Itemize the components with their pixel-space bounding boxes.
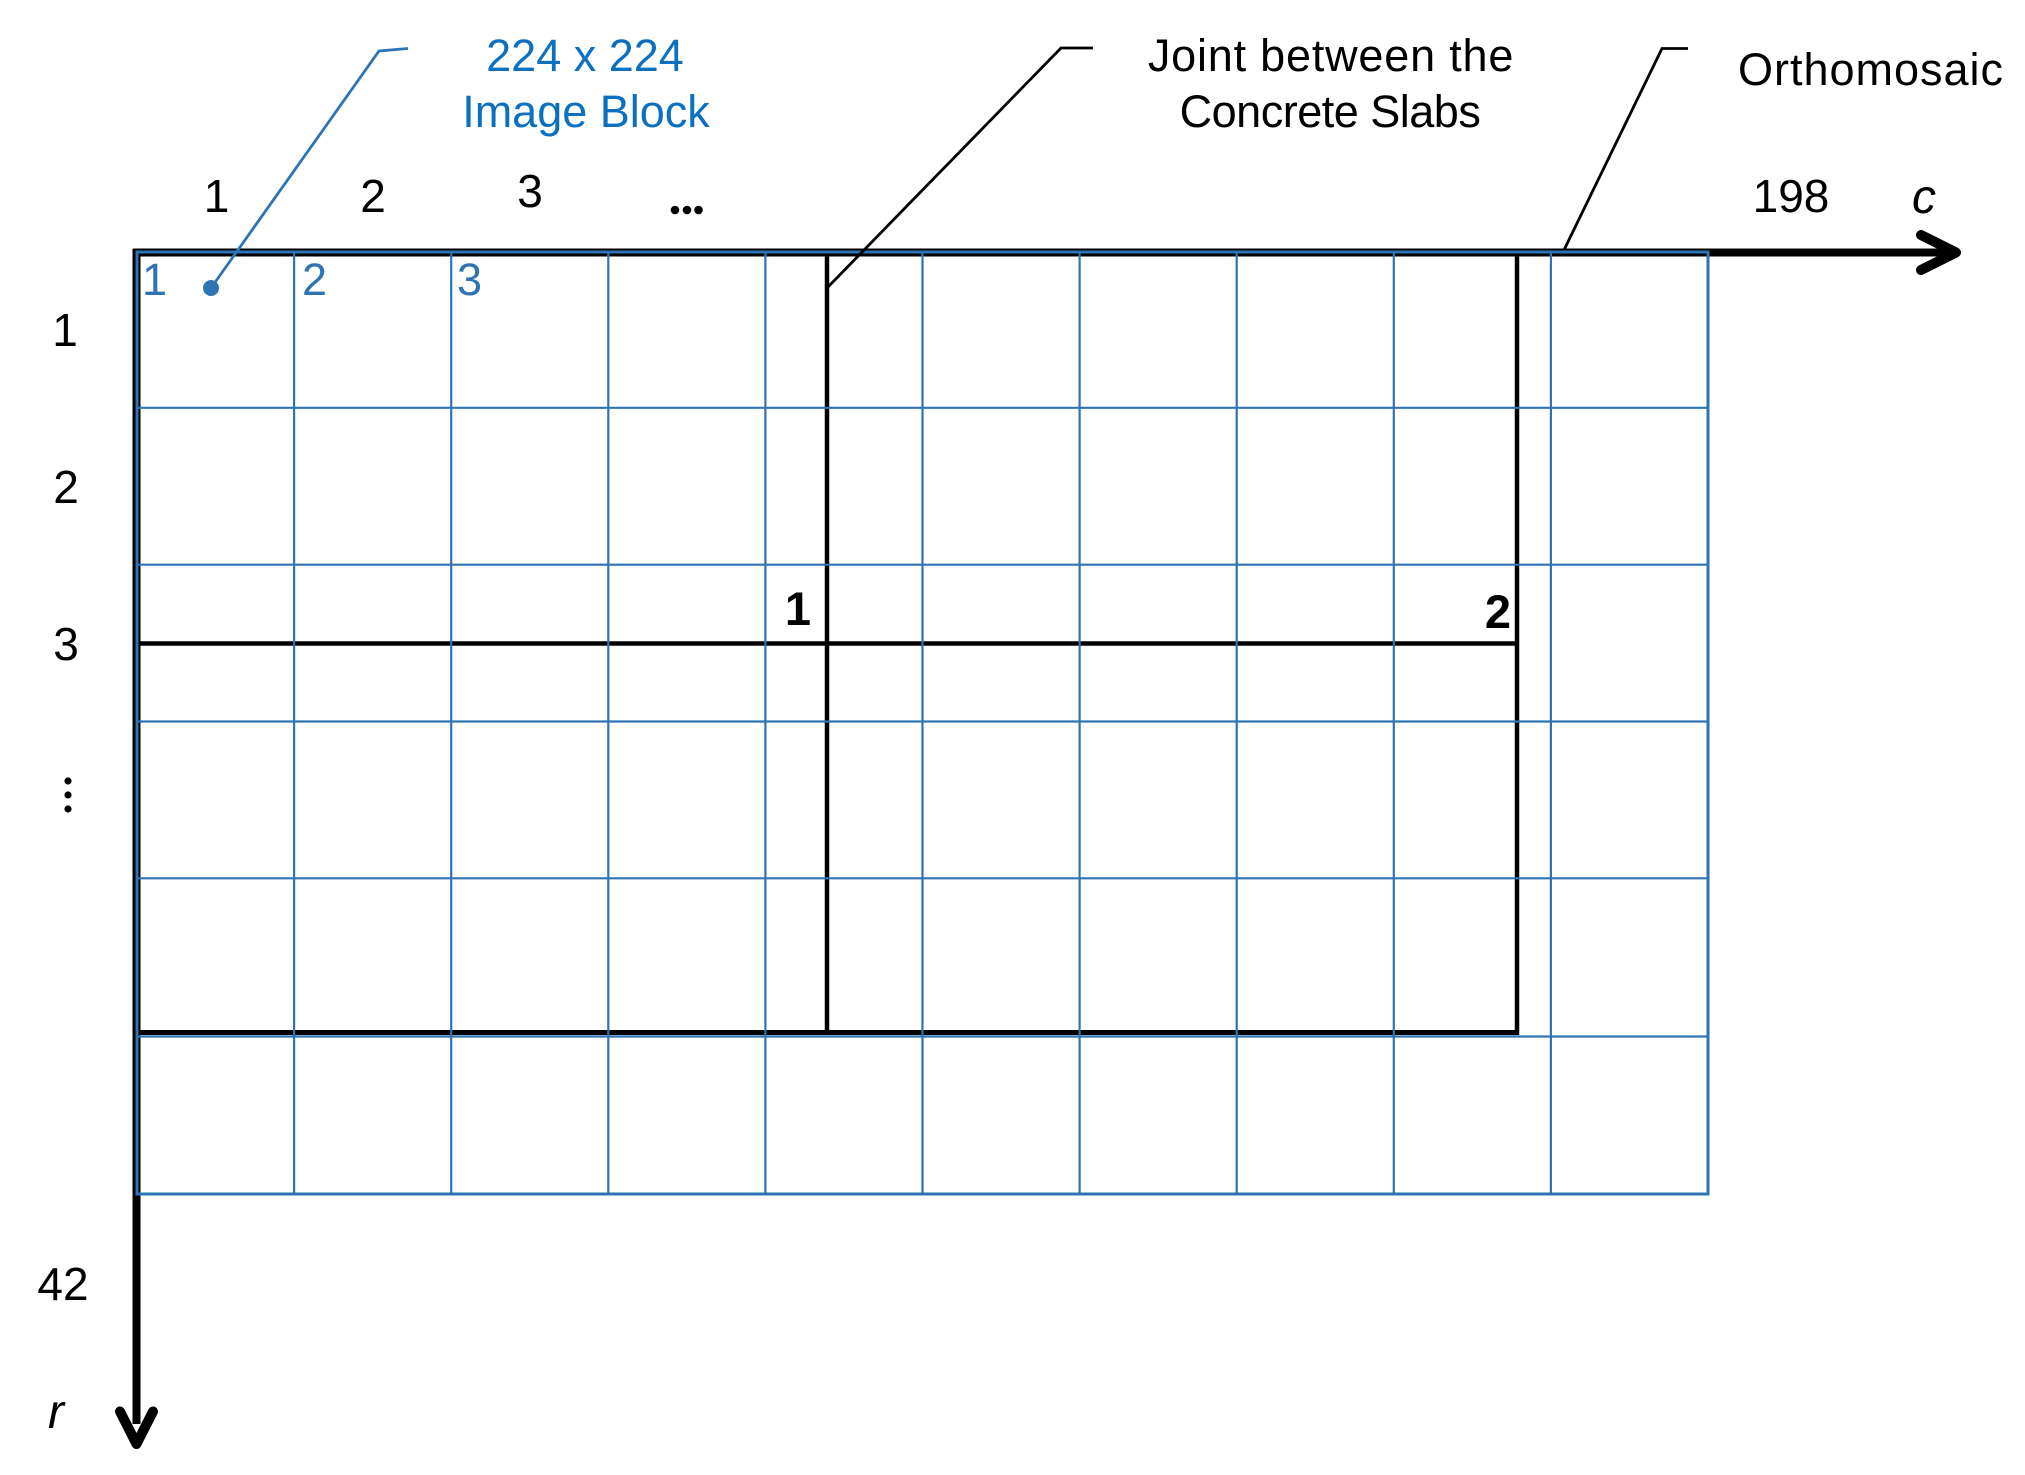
svg-text:1: 1: [204, 170, 230, 222]
svg-text:42: 42: [37, 1258, 88, 1310]
svg-text:3: 3: [517, 165, 543, 217]
svg-text:1: 1: [785, 582, 811, 635]
svg-text:2: 2: [360, 170, 386, 222]
svg-text:r: r: [48, 1386, 66, 1439]
svg-text:Joint between the: Joint between the: [1148, 30, 1514, 81]
svg-text:1: 1: [142, 254, 167, 305]
svg-text:2: 2: [1485, 585, 1511, 638]
svg-text:224 x 224: 224 x 224: [486, 30, 684, 81]
svg-text:2: 2: [302, 254, 327, 305]
svg-text:c: c: [1912, 171, 1936, 224]
svg-text:2: 2: [53, 461, 79, 513]
svg-text:3: 3: [457, 254, 482, 305]
svg-text:Concrete Slabs: Concrete Slabs: [1180, 86, 1481, 137]
svg-text:3: 3: [53, 618, 79, 670]
svg-text:Orthomosaic: Orthomosaic: [1738, 44, 2004, 95]
svg-text:Image Block: Image Block: [462, 86, 710, 137]
svg-text:1: 1: [52, 304, 78, 356]
svg-text:198: 198: [1753, 170, 1830, 222]
